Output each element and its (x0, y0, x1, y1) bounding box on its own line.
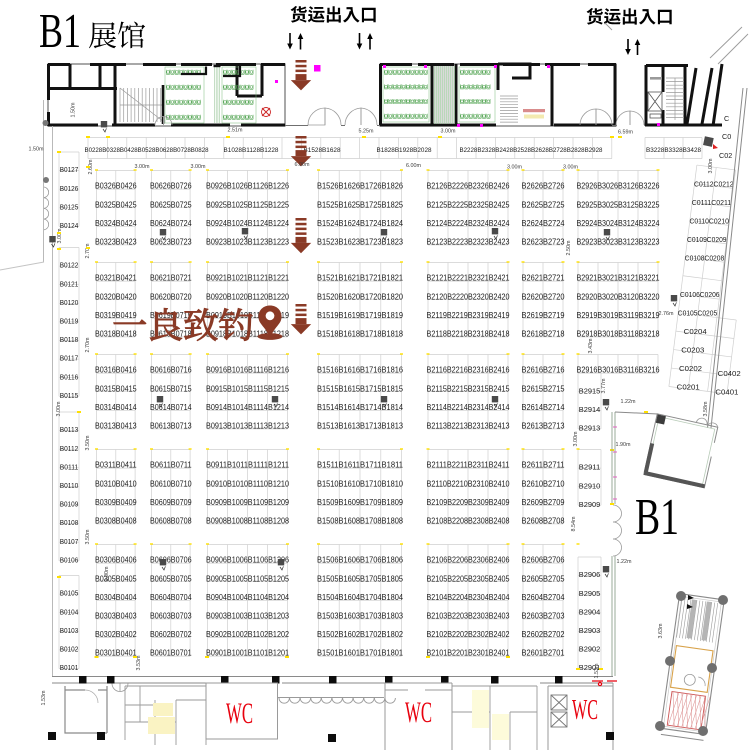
svg-text:B0320B0420: B0320B0420 (95, 292, 137, 301)
svg-text:B0910B1010B1110B1210: B0910B1010B1110B1210 (206, 479, 290, 488)
svg-text:C0402: C0402 (718, 369, 741, 378)
svg-text:B0924B1024B1124B1224: B0924B1024B1124B1224 (206, 219, 290, 228)
svg-text:B1525B1625B1725B1825: B1525B1625B1725B1825 (317, 200, 404, 209)
svg-text:2.76m: 2.76m (659, 311, 674, 317)
svg-text:B2124B2224B2324B2424: B2124B2224B2324B2424 (427, 219, 511, 228)
svg-text:B0117: B0117 (60, 354, 79, 363)
svg-text:B2609B2709: B2609B2709 (522, 498, 565, 507)
svg-text:B2611B2711: B2611B2711 (522, 461, 565, 470)
svg-text:B2123B2223B2323B2423: B2123B2223B2323B2423 (427, 238, 510, 247)
svg-text:B0908B1008B1108B1208: B0908B1008B1108B1208 (206, 517, 289, 526)
svg-text:B0903B1003B1103B1203: B0903B1003B1103B1203 (206, 612, 289, 621)
svg-text:6.00m: 6.00m (406, 163, 421, 169)
svg-text:B2115B2215B2315B2415: B2115B2215B2315B2415 (427, 384, 511, 393)
svg-text:1.50m: 1.50m (71, 102, 77, 117)
svg-text:B0308B0408: B0308B0408 (95, 517, 137, 526)
svg-text:B1: B1 (635, 489, 679, 546)
svg-text:B2102B2202B2302B2402: B2102B2202B2302B2402 (427, 630, 510, 639)
svg-text:B0325B0425: B0325B0425 (95, 200, 137, 209)
svg-text:B0121: B0121 (60, 279, 79, 288)
svg-text:B0314B0414: B0314B0414 (95, 403, 137, 412)
svg-text:B2108B2208B2308B2408: B2108B2208B2308B2408 (427, 517, 510, 526)
svg-text:B1514B1614B1714B1814: B1514B1614B1714B1814 (317, 403, 404, 412)
svg-text:B0604B0704: B0604B0704 (150, 593, 192, 602)
svg-text:B0609B0709: B0609B0709 (150, 498, 192, 507)
svg-text:B0313B0413: B0313B0413 (95, 422, 137, 431)
svg-text:B0905B1005B1105B1205: B0905B1005B1105B1205 (206, 574, 290, 583)
svg-text:B0626B0726: B0626B0726 (150, 182, 192, 191)
svg-text:B2106B2206B2306B2406: B2106B2206B2306B2406 (427, 556, 510, 565)
svg-text:B0110: B0110 (60, 481, 79, 490)
svg-text:B0118: B0118 (60, 335, 79, 344)
svg-text:B1504B1604B1704B1804: B1504B1604B1704B1804 (317, 593, 404, 602)
svg-text:B1526B1626B1726B1826: B1526B1626B1726B1826 (317, 182, 403, 191)
svg-text:B2610B2710: B2610B2710 (522, 479, 566, 488)
svg-text:B0602B0702: B0602B0702 (150, 630, 192, 639)
svg-text:B0119: B0119 (60, 317, 79, 326)
svg-text:B2114B2214B2314B2414: B2114B2214B2314B2414 (427, 403, 511, 412)
svg-text:B0916B1016B1116B1216: B0916B1016B1116B1216 (206, 366, 289, 375)
svg-text:B0611B0711: B0611B0711 (150, 461, 192, 470)
svg-text:B1510B1610B1710B1810: B1510B1610B1710B1810 (317, 479, 404, 488)
svg-text:B1505B1605B1705B1805: B1505B1605B1705B1805 (317, 574, 404, 583)
svg-text:2.70m: 2.70m (85, 243, 91, 258)
svg-text:B0316B0416: B0316B0416 (95, 366, 137, 375)
svg-text:B2911: B2911 (579, 463, 601, 472)
svg-text:B0606B0706: B0606B0706 (150, 556, 192, 565)
svg-text:B0310B0410: B0310B0410 (95, 479, 137, 488)
svg-text:B1519B1619B1719B1819: B1519B1619B1719B1819 (317, 311, 403, 320)
svg-text:B0102: B0102 (60, 645, 79, 654)
svg-text:WC: WC (572, 695, 598, 726)
svg-text:3.00m: 3.00m (56, 401, 62, 416)
svg-text:B0120: B0120 (60, 298, 79, 307)
svg-text:2.70m: 2.70m (85, 337, 91, 352)
svg-text:B2605B2705: B2605B2705 (522, 574, 566, 583)
svg-text:B1524B1624B1724B1824: B1524B1624B1724B1824 (317, 219, 404, 228)
svg-text:B1518B1618B1718B1818: B1518B1618B1718B1818 (317, 330, 403, 339)
svg-text:B1502B1602B1702B1802: B1502B1602B1702B1802 (317, 630, 403, 639)
svg-text:B2924B3024B3124B3224: B2924B3024B3124B3224 (577, 219, 661, 228)
svg-text:B0101: B0101 (60, 663, 79, 672)
svg-text:B2923B3023B3123B3223: B2923B3023B3123B3223 (577, 238, 660, 247)
svg-text:C0203: C0203 (681, 346, 704, 355)
svg-text:1.53m: 1.53m (594, 663, 600, 678)
svg-text:C0110C0210: C0110C0210 (689, 216, 729, 225)
svg-text:B2606B2706: B2606B2706 (522, 556, 565, 565)
svg-text:B0315B0415: B0315B0415 (95, 384, 137, 393)
svg-text:3.00m: 3.00m (57, 228, 63, 243)
svg-text:3.00m: 3.00m (135, 164, 150, 170)
svg-text:3.00m: 3.00m (563, 165, 578, 171)
svg-text:1.50m: 1.50m (29, 147, 44, 153)
svg-text:3.00m: 3.00m (573, 431, 579, 446)
svg-text:B0318B0418: B0318B0418 (95, 330, 137, 339)
svg-text:B0603B0703: B0603B0703 (150, 612, 192, 621)
svg-text:2.00m: 2.00m (104, 566, 110, 581)
svg-text:B0303B0403: B0303B0403 (95, 612, 137, 621)
svg-text:B2906: B2906 (579, 570, 601, 579)
svg-text:1.53m: 1.53m (41, 690, 47, 705)
svg-text:B0925B1025B1125B1225: B0925B1025B1125B1225 (206, 200, 290, 209)
svg-text:B0321B0421: B0321B0421 (95, 274, 137, 283)
svg-text:B2602B2702: B2602B2702 (522, 630, 565, 639)
svg-text:B0304B0404: B0304B0404 (95, 593, 137, 602)
svg-text:B2613B2713: B2613B2713 (522, 422, 565, 431)
svg-text:B0902B1002B1102B1202: B0902B1002B1102B1202 (206, 630, 289, 639)
svg-text:B0615B0715: B0615B0715 (150, 384, 192, 393)
svg-text:B2913: B2913 (579, 424, 601, 433)
svg-text:B0122: B0122 (60, 261, 79, 270)
svg-text:B1828B1928B2028: B1828B1928B2028 (377, 147, 432, 154)
svg-text:B0326B0426: B0326B0426 (95, 182, 137, 191)
svg-text:B2119B2219B2319B2419: B2119B2219B2319B2419 (427, 311, 510, 320)
svg-text:B2925B3025B3125B3225: B2925B3025B3125B3225 (577, 200, 661, 209)
svg-text:B1520B1620B1720B1820: B1520B1620B1720B1820 (317, 292, 404, 301)
svg-text:B0302B0402: B0302B0402 (95, 630, 137, 639)
svg-text:B0624B0724: B0624B0724 (150, 219, 192, 228)
svg-text:B2918B3018B3118B3218: B2918B3018B3118B3218 (577, 330, 660, 339)
svg-text:B1523B1623B1723B1823: B1523B1623B1723B1823 (317, 238, 403, 247)
svg-text:B0921B1021B1121B1221: B0921B1021B1121B1221 (206, 274, 289, 283)
svg-text:B2914: B2914 (579, 405, 601, 414)
svg-text:B2623B2723: B2623B2723 (522, 238, 565, 247)
svg-text:B2121B2221B2321B2421: B2121B2221B2321B2421 (427, 274, 510, 283)
svg-text:C: C (724, 114, 729, 123)
svg-text:B1516B1616B1716B1816: B1516B1616B1716B1816 (317, 366, 403, 375)
svg-text:B2903: B2903 (579, 626, 601, 635)
svg-text:1.90m: 1.90m (616, 442, 631, 448)
svg-text:B0605B0705: B0605B0705 (150, 574, 192, 583)
svg-text:3.50m: 3.50m (85, 529, 91, 544)
svg-text:5.25m: 5.25m (359, 129, 374, 135)
svg-text:B1506B1606B1706B1806: B1506B1606B1706B1806 (317, 556, 403, 565)
svg-text:8.54m: 8.54m (571, 516, 577, 531)
svg-text:B0915B1015B1115B1215: B0915B1015B1115B1215 (206, 384, 290, 393)
svg-text:B2104B2204B2304B2404: B2104B2204B2304B2404 (427, 593, 511, 602)
svg-text:3.58m: 3.58m (703, 401, 709, 416)
svg-text:C0112C0212: C0112C0212 (694, 179, 734, 188)
svg-text:B0621B0721: B0621B0721 (150, 274, 192, 283)
svg-text:B0323B0423: B0323B0423 (95, 238, 137, 247)
svg-text:B2620B2720: B2620B2720 (522, 292, 566, 301)
svg-text:1.22m: 1.22m (617, 559, 632, 565)
svg-text:3.00m: 3.00m (191, 164, 206, 170)
svg-text:B0306B0406: B0306B0406 (95, 556, 137, 565)
svg-text:B1: B1 (39, 3, 81, 58)
svg-text:B0228B0328B0428B0528B0628B0728: B0228B0328B0428B0528B0628B0728B0828 (85, 147, 209, 154)
svg-text:B2601B2701: B2601B2701 (522, 649, 565, 658)
svg-text:B0901B1001B1101B1201: B0901B1001B1101B1201 (206, 649, 289, 658)
svg-text:B0309B0409: B0309B0409 (95, 498, 137, 507)
svg-text:B2101B2201B2301B2401: B2101B2201B2301B2401 (427, 649, 510, 658)
svg-text:B2616B2716: B2616B2716 (522, 366, 565, 375)
svg-text:B1515B1615B1715B1815: B1515B1615B1715B1815 (317, 384, 404, 393)
svg-text:B0613B0713: B0613B0713 (150, 422, 192, 431)
svg-text:B0103: B0103 (60, 626, 79, 635)
svg-text:B0305B0405: B0305B0405 (95, 574, 137, 583)
svg-text:B0311B0411: B0311B0411 (95, 461, 137, 470)
svg-text:B2625B2725: B2625B2725 (522, 200, 566, 209)
svg-text:B2228B2328B2428B2528B2628B2728: B2228B2328B2428B2528B2628B2728B2828B2928 (460, 147, 603, 154)
svg-text:B2109B2209B2309B2409: B2109B2209B2309B2409 (427, 498, 510, 507)
svg-text:B2615B2715: B2615B2715 (522, 384, 566, 393)
svg-text:B2608B2708: B2608B2708 (522, 517, 565, 526)
svg-text:B2103B2203B2303B2403: B2103B2203B2303B2403 (427, 612, 510, 621)
svg-text:B2126B2226B2326B2426: B2126B2226B2326B2426 (427, 182, 510, 191)
svg-text:B0319B0419: B0319B0419 (95, 311, 137, 320)
svg-text:C0204: C0204 (684, 327, 707, 336)
svg-text:B2926B3026B3126B3226: B2926B3026B3126B3226 (577, 182, 660, 191)
svg-text:3.00m: 3.00m (708, 158, 714, 173)
svg-text:B2921B3021B3121B3221: B2921B3021B3121B3221 (577, 274, 660, 283)
svg-text:B2614B2714: B2614B2714 (522, 403, 566, 412)
svg-text:3.50m: 3.50m (85, 435, 91, 450)
svg-text:B2910: B2910 (579, 481, 601, 490)
svg-text:B2125B2225B2325B2425: B2125B2225B2325B2425 (427, 200, 511, 209)
svg-text:B0923B1023B1123B1223: B0923B1023B1123B1223 (206, 238, 289, 247)
svg-text:B0107: B0107 (60, 537, 79, 546)
svg-text:2.51m: 2.51m (228, 128, 243, 134)
svg-text:B2905: B2905 (579, 589, 601, 598)
svg-text:B0913B1013B1113B1213: B0913B1013B1113B1213 (206, 422, 289, 431)
svg-text:B2110B2210B2310B2410: B2110B2210B2310B2410 (427, 479, 511, 488)
svg-text:C0109C0209: C0109C0209 (687, 235, 727, 244)
svg-text:B0108: B0108 (60, 518, 79, 527)
svg-text:C0201: C0201 (677, 382, 700, 391)
svg-text:B2919B3019B3119B3219: B2919B3019B3119B3219 (577, 311, 660, 320)
svg-text:B2904: B2904 (579, 607, 601, 616)
svg-text:B0623B0723: B0623B0723 (150, 238, 192, 247)
svg-text:B0620B0720: B0620B0720 (150, 292, 192, 301)
svg-text:B2111B2211B2311B2411: B2111B2211B2311B2411 (427, 461, 510, 470)
svg-text:B1028B1128B1228: B1028B1128B1228 (224, 147, 279, 154)
svg-text:B0911B1011B1111B1211: B0911B1011B1111B1211 (206, 461, 289, 470)
svg-text:B0105: B0105 (60, 589, 79, 598)
svg-text:B2915: B2915 (579, 386, 601, 395)
svg-text:B0610B0710: B0610B0710 (150, 479, 192, 488)
svg-text:6.59m: 6.59m (618, 130, 633, 136)
svg-text:B1503B1603B1703B1803: B1503B1603B1703B1803 (317, 612, 403, 621)
svg-text:WC: WC (405, 696, 432, 729)
svg-text:B0616B0716: B0616B0716 (150, 366, 192, 375)
svg-text:1.22m: 1.22m (621, 399, 636, 405)
svg-text:B1528B1628: B1528B1628 (304, 147, 341, 154)
svg-text:B0127: B0127 (60, 165, 79, 174)
svg-text:B0109: B0109 (60, 500, 79, 509)
svg-text:B2116B2216B2316B2416: B2116B2216B2316B2416 (427, 366, 510, 375)
svg-text:3.43m: 3.43m (588, 338, 594, 353)
svg-text:B2618B2718: B2618B2718 (522, 330, 565, 339)
svg-text:WC: WC (226, 697, 253, 730)
svg-text:B2105B2205B2305B2405: B2105B2205B2305B2405 (427, 574, 511, 583)
svg-text:B0126: B0126 (60, 184, 79, 193)
svg-text:B2920B3020B3120B3220: B2920B3020B3120B3220 (577, 292, 661, 301)
svg-text:B1509B1609B1709B1809: B1509B1609B1709B1809 (317, 498, 403, 507)
svg-text:B1513B1613B1713B1813: B1513B1613B1713B1813 (317, 422, 403, 431)
svg-text:B2624B2724: B2624B2724 (522, 219, 566, 228)
svg-text:C02: C02 (719, 151, 732, 160)
svg-text:C0401: C0401 (715, 387, 738, 396)
svg-text:B2120B2220B2320B2420: B2120B2220B2320B2420 (427, 292, 511, 301)
svg-text:B0601B0701: B0601B0701 (150, 649, 192, 658)
svg-text:B0112: B0112 (60, 444, 79, 453)
svg-text:B1508B1608B1708B1808: B1508B1608B1708B1808 (317, 517, 403, 526)
svg-text:B0106: B0106 (60, 555, 79, 564)
svg-text:B2118B2218B2318B2418: B2118B2218B2318B2418 (427, 330, 510, 339)
svg-text:C0108C0208: C0108C0208 (685, 253, 725, 262)
svg-text:6.00m: 6.00m (295, 162, 310, 168)
svg-text:B0926B1026B1126B1226: B0926B1026B1126B1226 (206, 182, 289, 191)
svg-text:B0909B1009B1109B1209: B0909B1009B1109B1209 (206, 498, 289, 507)
svg-text:3.00m: 3.00m (441, 129, 456, 135)
svg-text:B2603B2703: B2603B2703 (522, 612, 565, 621)
svg-text:B0104: B0104 (60, 607, 79, 616)
svg-text:C0106C0206: C0106C0206 (680, 290, 720, 299)
svg-text:B2902: B2902 (579, 645, 601, 654)
svg-text:B1511B1611B1711B1811: B1511B1611B1711B1811 (317, 461, 403, 470)
svg-text:B0906B1006B1106B1206: B0906B1006B1106B1206 (206, 556, 289, 565)
svg-text:B0324B0424: B0324B0424 (95, 219, 137, 228)
svg-text:B1501B1601B1701B1801: B1501B1601B1701B1801 (317, 649, 403, 658)
svg-text:B0115: B0115 (60, 391, 79, 400)
svg-text:B2621B2721: B2621B2721 (522, 274, 565, 283)
svg-text:C0: C0 (722, 132, 731, 141)
svg-text:B2604B2704: B2604B2704 (522, 593, 566, 602)
svg-text:B0608B0708: B0608B0708 (150, 517, 192, 526)
svg-text:B2619B2719: B2619B2719 (522, 311, 565, 320)
svg-text:B2113B2213B2313B2413: B2113B2213B2313B2413 (427, 422, 510, 431)
svg-text:B0625B0725: B0625B0725 (150, 200, 192, 209)
svg-text:B3228B3328B3428: B3228B3328B3428 (646, 147, 701, 154)
svg-text:B0111: B0111 (60, 462, 79, 471)
svg-text:3.77m: 3.77m (601, 378, 607, 393)
svg-text:B0920B1020B1120B1220: B0920B1020B1120B1220 (206, 292, 290, 301)
svg-text:B0904B1004B1104B1204: B0904B1004B1104B1204 (206, 593, 290, 602)
svg-text:B0125: B0125 (60, 202, 79, 211)
svg-text:B2626B2726: B2626B2726 (522, 182, 565, 191)
svg-text:2.50m: 2.50m (566, 240, 572, 255)
svg-text:C0202: C0202 (679, 364, 702, 373)
svg-text:C0105C0205: C0105C0205 (678, 309, 718, 318)
svg-text:C0111C0211: C0111C0211 (692, 198, 732, 207)
svg-text:B0113: B0113 (60, 425, 79, 434)
svg-text:B1521B1621B1721B1821: B1521B1621B1721B1821 (317, 274, 403, 283)
svg-text:B0116: B0116 (60, 372, 79, 381)
svg-text:B0614B0714: B0614B0714 (150, 403, 192, 412)
svg-text:B0301B0401: B0301B0401 (95, 649, 137, 658)
svg-text:B2909: B2909 (579, 500, 601, 509)
svg-text:3.63m: 3.63m (658, 623, 664, 638)
